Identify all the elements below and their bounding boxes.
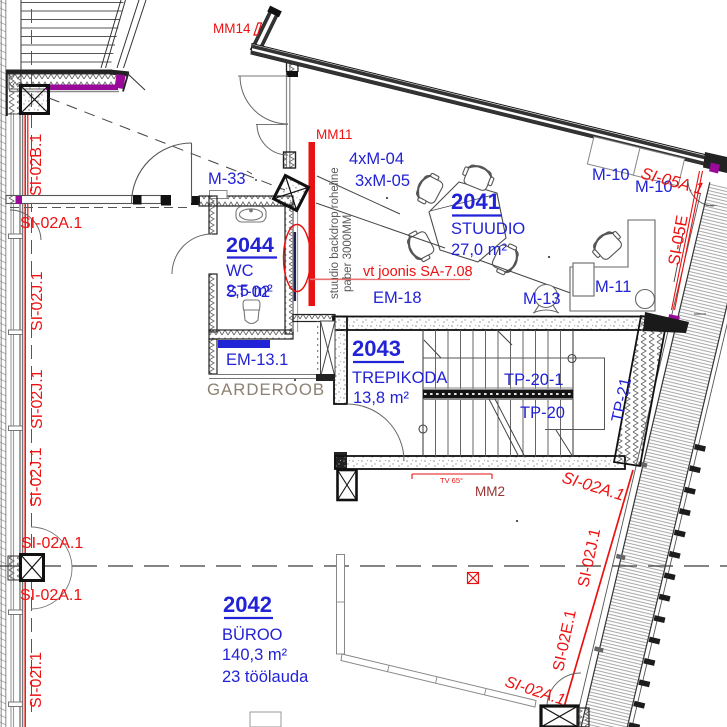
svg-text:SI-02J.1: SI-02J.1	[28, 447, 45, 507]
svg-text:3xM-05: 3xM-05	[355, 172, 410, 190]
svg-text:23 töölauda: 23 töölauda	[222, 668, 309, 686]
svg-text:GARDEROOB: GARDEROOB	[207, 380, 325, 399]
svg-text:4xM-04: 4xM-04	[349, 150, 404, 168]
svg-text:EM-18: EM-18	[373, 289, 422, 307]
svg-text:SI-02J.1: SI-02J.1	[29, 369, 46, 429]
svg-text:SI-02J.1: SI-02J.1	[29, 271, 46, 331]
svg-text:SI-02I.1: SI-02I.1	[28, 652, 45, 708]
svg-text:SI-02A.1: SI-02A.1	[20, 587, 82, 604]
svg-text:SI-02A.1: SI-02A.1	[20, 215, 82, 232]
svg-text:TP-20: TP-20	[520, 404, 565, 422]
svg-text:vt joonis SA-7.08: vt joonis SA-7.08	[363, 264, 473, 280]
svg-text:2041: 2041	[451, 189, 500, 214]
svg-text:M-13: M-13	[523, 290, 561, 308]
svg-text:M-33: M-33	[208, 170, 246, 188]
svg-text:M-10: M-10	[592, 166, 630, 184]
svg-text:13,8 m²: 13,8 m²	[353, 389, 409, 407]
svg-text:TP-20-1: TP-20-1	[504, 371, 564, 389]
svg-text:2043: 2043	[352, 336, 401, 361]
svg-text:MM14: MM14	[213, 21, 251, 36]
svg-text:WC: WC	[226, 262, 254, 280]
svg-text:ST-02: ST-02	[226, 283, 270, 301]
svg-text:2042: 2042	[223, 592, 272, 617]
svg-text:M-11: M-11	[595, 278, 631, 296]
svg-text:TV 65°: TV 65°	[440, 476, 463, 485]
svg-text:MM11: MM11	[316, 127, 353, 142]
svg-text:STUUDIO: STUUDIO	[451, 220, 525, 238]
svg-text:27,0 m²: 27,0 m²	[451, 241, 507, 259]
svg-text:TREPIKODA: TREPIKODA	[352, 369, 447, 387]
svg-text:2044: 2044	[226, 233, 274, 257]
svg-text:140,3 m²: 140,3 m²	[222, 646, 288, 664]
svg-text:BÜROO: BÜROO	[222, 626, 283, 644]
svg-text:SI-02B.1: SI-02B.1	[28, 134, 45, 196]
svg-text:paber 3000MM: paber 3000MM	[342, 215, 354, 292]
svg-text:MM2: MM2	[475, 484, 505, 499]
svg-text:SI-02A.1: SI-02A.1	[21, 535, 83, 552]
svg-text:EM-13.1: EM-13.1	[226, 351, 288, 369]
